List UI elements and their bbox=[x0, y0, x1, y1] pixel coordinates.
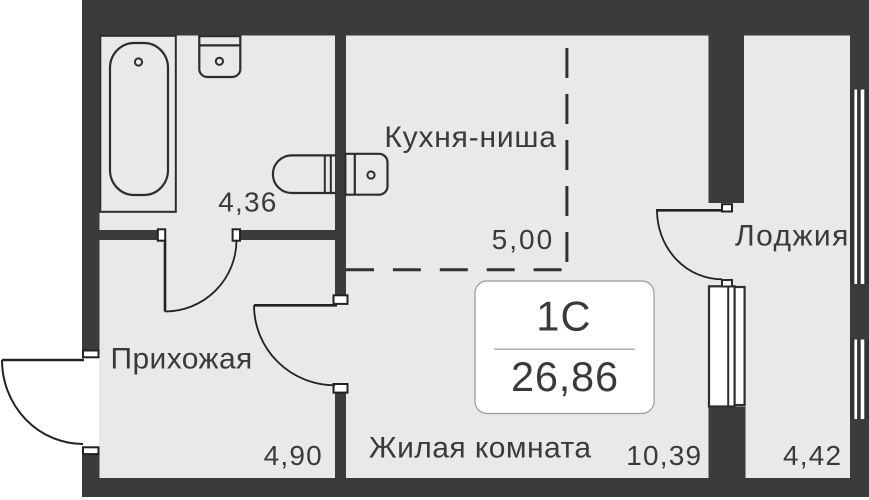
svg-text:4,36: 4,36 bbox=[218, 186, 277, 217]
svg-text:26,86: 26,86 bbox=[511, 353, 619, 400]
svg-text:Жилая комната: Жилая комната bbox=[369, 431, 592, 464]
svg-text:10,39: 10,39 bbox=[626, 440, 702, 471]
svg-text:1С: 1С bbox=[536, 293, 591, 340]
svg-text:4,90: 4,90 bbox=[264, 440, 323, 471]
svg-text:Прихожая: Прихожая bbox=[110, 343, 252, 376]
svg-text:Лоджия: Лоджия bbox=[735, 219, 850, 252]
svg-text:Кухня-ниша: Кухня-ниша bbox=[384, 121, 556, 154]
svg-text:5,00: 5,00 bbox=[492, 224, 555, 255]
svg-text:4,42: 4,42 bbox=[783, 440, 842, 471]
